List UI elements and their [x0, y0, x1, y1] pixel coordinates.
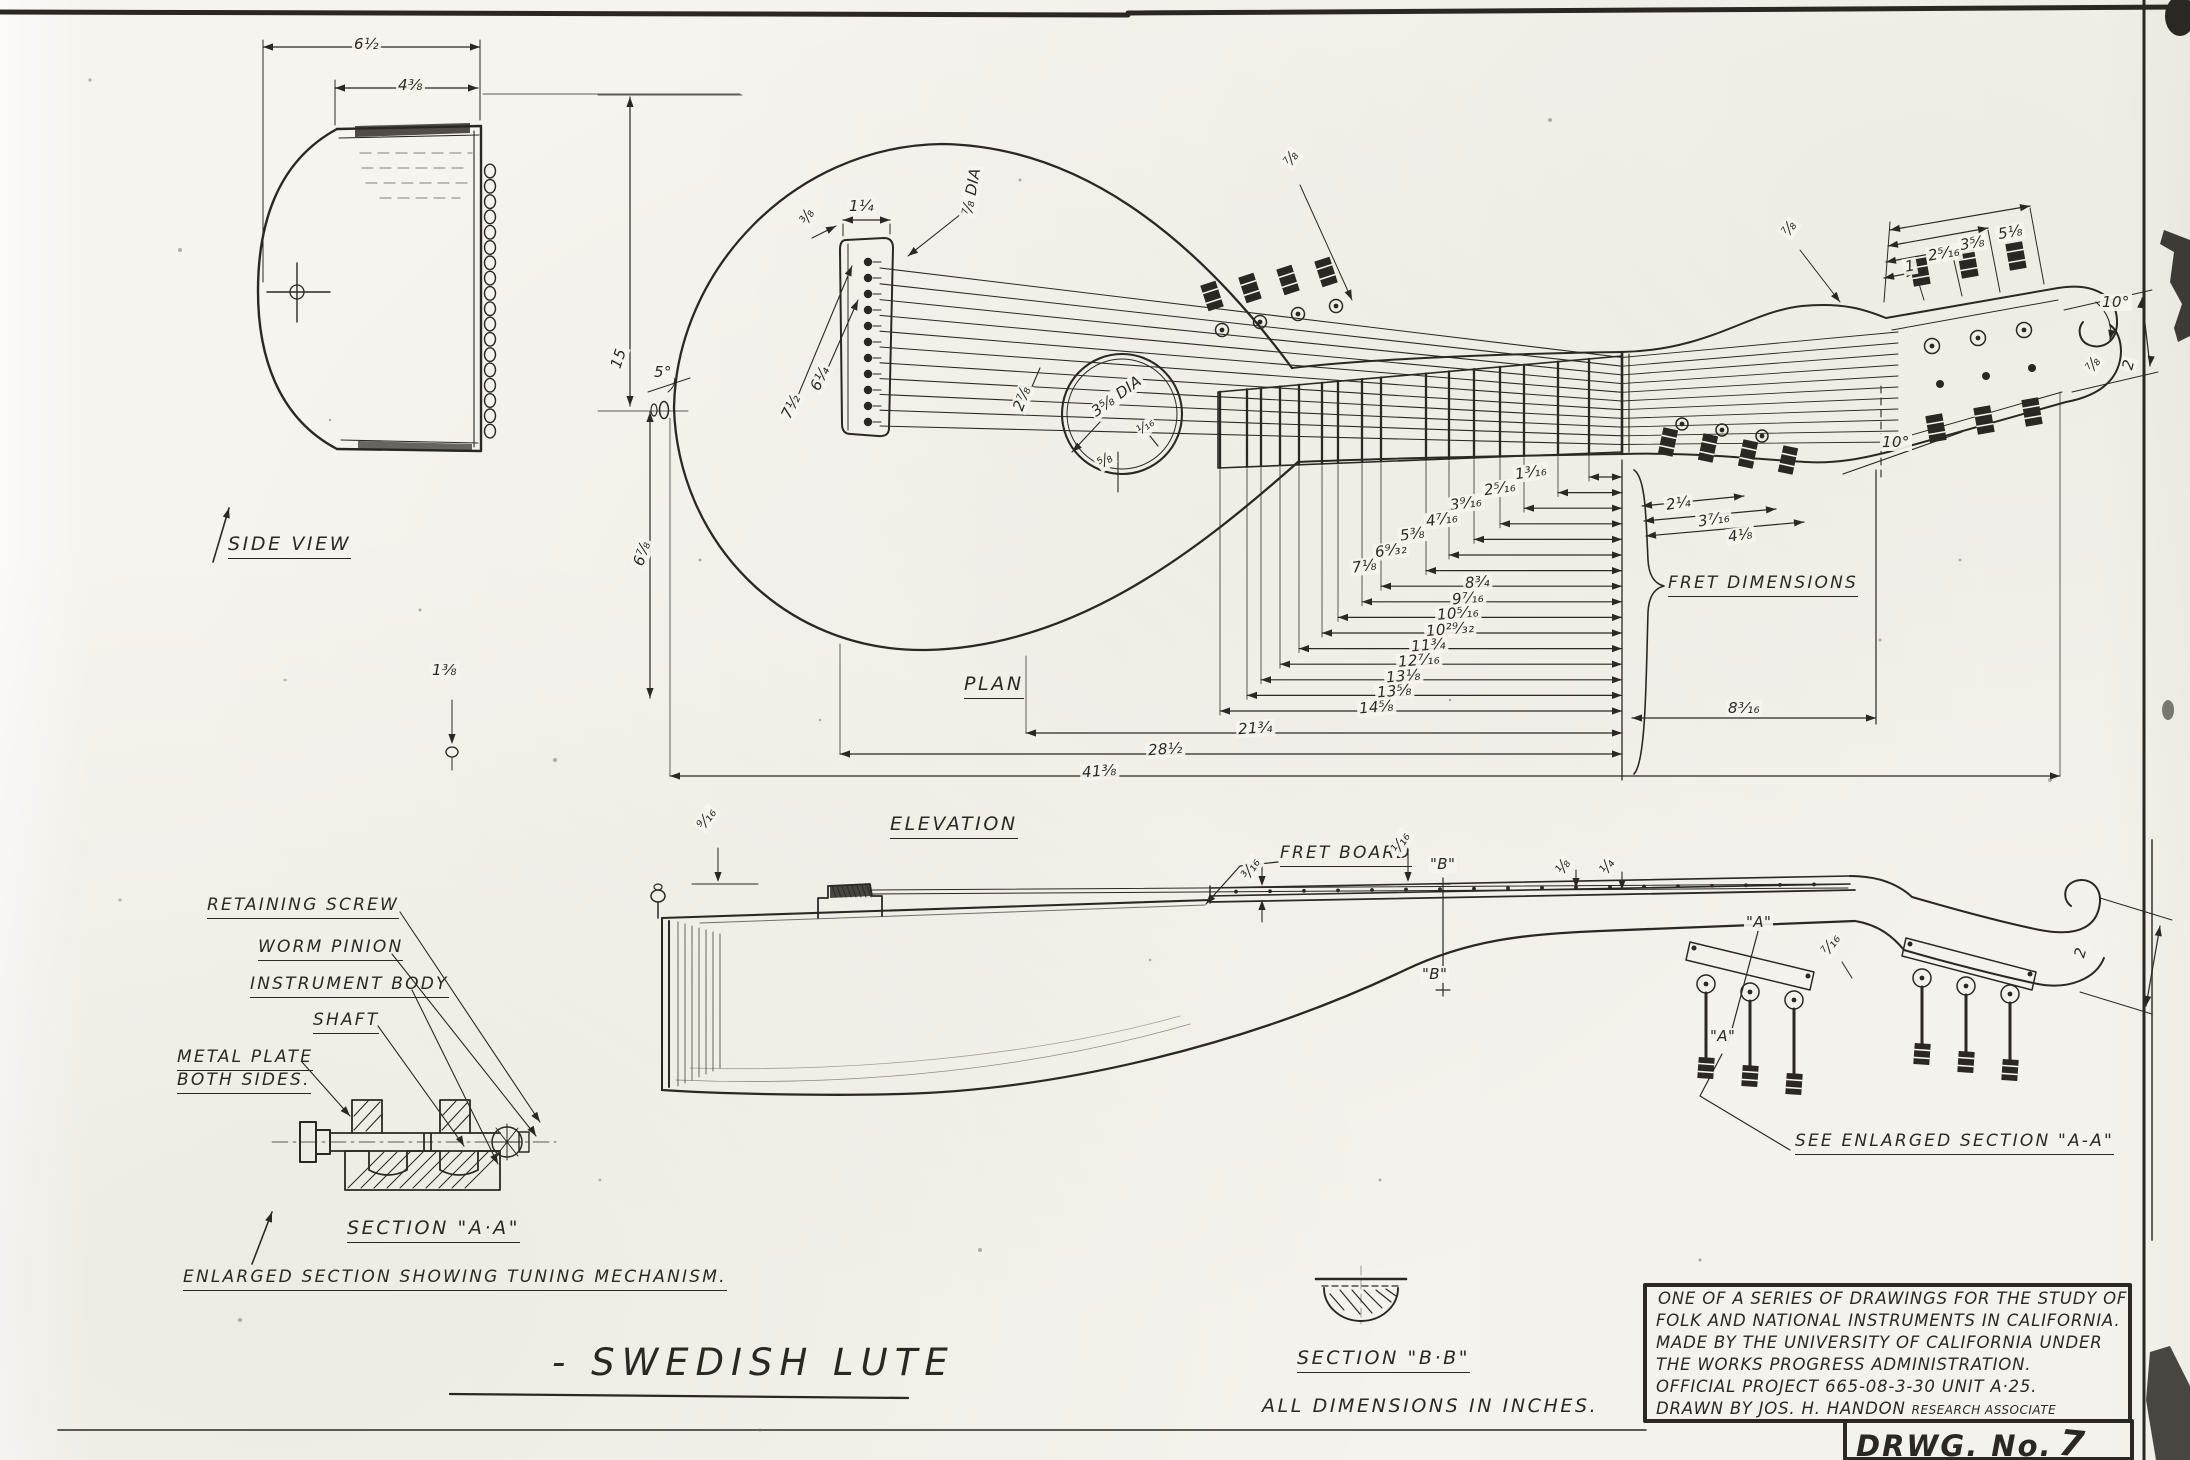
section-bb-label: SECTION "B·B": [1297, 1348, 1470, 1373]
titleblock-line-5: OFFICIAL PROJECT 665-08-3-30 UNIT A·25.: [1656, 1378, 2037, 1397]
section-b-mark-top: "B": [1428, 856, 1457, 873]
fret-dimensions-label: FRET DIMENSIONS: [1668, 574, 1858, 597]
dim-sideview-overall: 6½: [352, 36, 381, 53]
section-a-mark-bottom: "A": [1708, 1028, 1737, 1045]
section-aa-caption: ENLARGED SECTION SHOWING TUNING MECHANIS…: [183, 1268, 727, 1291]
section-a-mark-top: "A": [1744, 914, 1773, 931]
blueprint-sheet: 6½ 4⅜ SIDE VIEW 15 6⅞ 1¼ ⅜ ⅞ DIA 7½ 6¼ 5…: [0, 0, 2190, 1460]
section-aa-label: SECTION "A·A": [347, 1218, 520, 1243]
callout-instrument-body: INSTRUMENT BODY: [250, 975, 449, 998]
plan-label: PLAN: [964, 674, 1024, 699]
dim-edge-height: 1⅜: [430, 662, 459, 679]
titleblock-drawn-by: DRAWN BY JOS. H. HANDON RESEARCH ASSOCIA…: [1656, 1400, 2056, 1419]
drawing-title: - SWEDISH LUTE: [552, 1342, 955, 1385]
dim-bridge-width: 1¼: [847, 198, 876, 215]
elevation-linework: [446, 700, 2172, 1150]
drawn-by-role: RESEARCH ASSOCIATE: [1912, 1403, 2057, 1417]
callout-shaft: SHAFT: [313, 1011, 379, 1034]
dim-head-1: 1: [1902, 257, 1919, 276]
dim-overall-41: 41⅜: [1079, 762, 1119, 782]
side-view-label: SIDE VIEW: [228, 534, 351, 559]
titleblock-line-2: FOLK AND NATIONAL INSTRUMENTS IN CALIFOR…: [1656, 1312, 2120, 1331]
dim-head-angle: 10°: [2100, 294, 2132, 311]
fret-dim-label: 14⅝: [1356, 697, 1396, 718]
callout-worm-pinion: WORM PINION: [258, 938, 403, 961]
callout-both-sides: BOTH SIDES.: [177, 1071, 311, 1094]
dim-head-tilt: 10°: [1880, 434, 1912, 451]
dim-nut-to-end: 8³⁄₁₆: [1726, 700, 1762, 717]
section-b-mark-bottom: "B": [1420, 966, 1449, 983]
drawn-by-text: DRAWN BY JOS. H. HANDON: [1656, 1399, 1906, 1418]
dim-overall-21: 21¾: [1235, 719, 1275, 739]
drawing-number-value: 7: [2056, 1423, 2087, 1460]
all-dimensions-note: ALL DIMENSIONS IN INCHES.: [1262, 1396, 1598, 1418]
drawing-number-label: DRWG. No.: [1856, 1429, 2053, 1460]
elevation-label: ELEVATION: [890, 814, 1018, 839]
drawing-linework: [0, 0, 2190, 1460]
side-view-linework: [213, 40, 481, 562]
page-border: [0, 0, 2190, 1460]
callout-metal-plate: METAL PLATE: [177, 1048, 313, 1071]
section-bb-linework: [1316, 1266, 1406, 1324]
fret-dim-label: 7⅛: [1349, 556, 1380, 577]
dim-bridge-angle: 5°: [652, 364, 674, 381]
callout-retaining-screw: RETAINING SCREW: [207, 896, 399, 919]
titleblock-line-1: ONE OF A SERIES OF DRAWINGS FOR THE STUD…: [1658, 1290, 2127, 1309]
dim-overall-28: 28½: [1145, 740, 1185, 760]
dim-sideview-top: 4⅜: [396, 77, 425, 94]
titleblock-line-4: THE WORKS PROGRESS ADMINISTRATION.: [1656, 1356, 2031, 1375]
see-enlarged-label: SEE ENLARGED SECTION "A-A": [1795, 1132, 2114, 1155]
drawing-number: DRWG. No.7: [1856, 1424, 2086, 1460]
titleblock-line-3: MADE BY THE UNIVERSITY OF CALIFORNIA UND…: [1656, 1334, 2103, 1353]
